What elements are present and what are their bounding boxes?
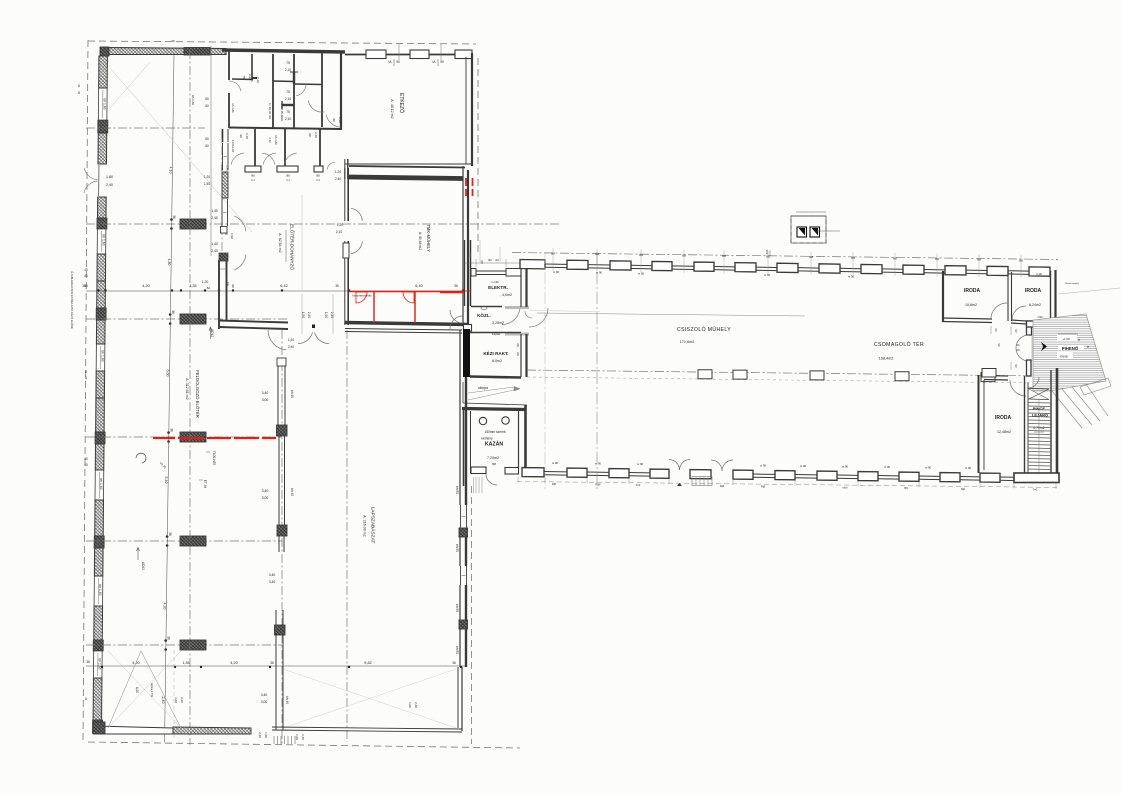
- svg-text:A: 312,81 m2: A: 312,81 m2: [185, 378, 189, 399]
- svg-text:ELEKTR.: ELEKTR.: [488, 285, 508, 290]
- svg-text:8: 8: [78, 91, 80, 95]
- svg-text:6,42: 6,42: [280, 284, 287, 288]
- svg-text:bh 40: bh 40: [290, 390, 294, 398]
- svg-text:KAZÁN: KAZÁN: [485, 441, 503, 448]
- svg-text:3,00: 3,00: [261, 700, 268, 704]
- svg-text:4,20: 4,20: [162, 603, 166, 610]
- svg-text:2,10: 2,10: [338, 117, 342, 123]
- svg-text:FELDOLGOZÓ ELŐTÉR: FELDOLGOZÓ ELŐTÉR: [195, 370, 200, 418]
- svg-text:bh 40: bh 40: [290, 488, 294, 496]
- svg-text:8: 8: [85, 697, 87, 701]
- svg-text:bh 1,80: bh 1,80: [231, 103, 235, 113]
- svg-text:2,40: 2,40: [301, 734, 305, 740]
- svg-text:4,20: 4,20: [135, 687, 139, 694]
- svg-text:nova: nova: [1060, 355, 1067, 359]
- svg-text:m 90: m 90: [595, 461, 602, 465]
- svg-text:75: 75: [286, 110, 290, 114]
- svg-text:90: 90: [332, 118, 336, 122]
- svg-text:8|8: 8|8: [766, 255, 770, 259]
- svg-text:40: 40: [84, 274, 88, 278]
- svg-text:1,20: 1,20: [337, 223, 344, 227]
- svg-text:A: 48,12 m2: A: 48,12 m2: [390, 99, 394, 118]
- svg-text:4,80: 4,80: [167, 259, 171, 266]
- svg-text:2,10: 2,10: [285, 97, 291, 101]
- svg-text:KÉZI RAKT.: KÉZI RAKT.: [483, 349, 508, 356]
- svg-text:8: 8: [85, 376, 87, 380]
- svg-text:150mm szerelt: 150mm szerelt: [485, 430, 506, 434]
- svg-text:1,40: 1,40: [211, 242, 218, 246]
- svg-text:D|R: D|R: [720, 484, 725, 488]
- svg-text:,62: ,62: [206, 286, 211, 290]
- svg-text:4,10: 4,10: [168, 167, 172, 174]
- svg-text:8|8: 8|8: [977, 258, 981, 262]
- svg-text:m 90: m 90: [638, 271, 645, 275]
- svg-text:bh 1,60: bh 1,60: [99, 478, 103, 489]
- svg-text:m 90: m 90: [965, 466, 972, 470]
- svg-text:1,00: 1,00: [408, 702, 412, 708]
- svg-text:12,48m2: 12,48m2: [997, 430, 1011, 434]
- svg-text:1,20: 1,20: [202, 280, 209, 284]
- svg-text:8|8: 8|8: [639, 253, 643, 257]
- svg-text:6,24m2: 6,24m2: [1029, 303, 1041, 307]
- svg-text:R|8: R|8: [761, 484, 766, 488]
- svg-text:8|9: 8|9: [904, 486, 908, 490]
- svg-text:3,00: 3,00: [174, 697, 178, 703]
- svg-text:2|2: 2|2: [495, 258, 499, 262]
- svg-text:m 90: m 90: [800, 464, 807, 468]
- svg-text:10,8m2: 10,8m2: [965, 303, 977, 307]
- svg-text:3,00: 3,00: [262, 398, 269, 402]
- svg-text:9|2: 9|2: [488, 258, 492, 262]
- svg-text:90: 90: [396, 60, 400, 64]
- svg-text:171,6m2: 171,6m2: [680, 340, 695, 344]
- svg-text:1,00: 1,00: [264, 732, 268, 738]
- svg-text:R|W: R|W: [596, 482, 602, 486]
- svg-text:4,20: 4,20: [230, 661, 237, 665]
- svg-text:75: 75: [286, 61, 290, 65]
- svg-text:75: 75: [286, 90, 290, 94]
- svg-text:60: 60: [205, 97, 209, 101]
- svg-text:, 3,25m2: , 3,25m2: [490, 321, 504, 325]
- svg-text:m 160: m 160: [491, 280, 499, 284]
- svg-text:2,10: 2,10: [285, 68, 291, 72]
- svg-text:36: 36: [166, 636, 170, 640]
- svg-text:A: 216,03 m2: A: 216,03 m2: [363, 515, 367, 536]
- svg-text:m90: m90: [1037, 315, 1043, 319]
- svg-text:, 4,0m2: , 4,0m2: [500, 293, 512, 297]
- svg-text:36: 36: [82, 284, 86, 288]
- svg-text:2|0: 2|0: [516, 343, 520, 347]
- svg-text:36: 36: [86, 660, 90, 664]
- svg-text:bh 1,60: bh 1,60: [98, 658, 102, 669]
- svg-text:8|8: 8|8: [893, 256, 897, 260]
- svg-text:2,10A 1,80: 2,10A 1,80: [231, 140, 235, 153]
- svg-text:IRODA: IRODA: [995, 415, 1012, 421]
- svg-text:40: 40: [84, 268, 88, 272]
- svg-text:1,50: 1,50: [324, 312, 328, 318]
- svg-text:1,40: 1,40: [211, 209, 218, 213]
- svg-text:AD42: AD42: [141, 562, 145, 570]
- svg-text:8|8: 8|8: [1019, 258, 1023, 262]
- svg-text:2,40: 2,40: [307, 312, 311, 318]
- svg-text:A: 40,64 m2: A: 40,64 m2: [418, 232, 422, 250]
- svg-text:ELŐTÉR-DOHÁNYZÓ: ELŐTÉR-DOHÁNYZÓ: [290, 224, 296, 270]
- svg-text:bh 1,60: bh 1,60: [100, 350, 104, 361]
- svg-text:PIHENŐ: PIHENŐ: [1062, 346, 1079, 351]
- svg-text:90: 90: [440, 60, 444, 64]
- svg-text:4,20: 4,20: [142, 284, 149, 288]
- svg-text:m 90: m 90: [764, 273, 771, 277]
- svg-text:2,10: 2,10: [285, 117, 291, 121]
- svg-text:2,40: 2,40: [258, 732, 262, 738]
- svg-text:36: 36: [454, 284, 458, 288]
- svg-text:8|8: 8|8: [492, 462, 496, 466]
- svg-text:102: 102: [765, 250, 769, 255]
- svg-text:Rövid szegély: Rövid szegély: [1065, 283, 1080, 285]
- svg-text:R|d: R|d: [961, 487, 966, 491]
- svg-text:2,10: 2,10: [314, 132, 318, 138]
- svg-text:90: 90: [239, 134, 243, 138]
- svg-text:2|0: 2|0: [480, 260, 484, 264]
- svg-text:40: 40: [84, 457, 88, 461]
- svg-text:2|6: 2|6: [516, 352, 520, 356]
- svg-text:2,40: 2,40: [106, 183, 113, 187]
- svg-text:2,40: 2,40: [161, 697, 165, 704]
- svg-text:36: 36: [452, 661, 456, 665]
- svg-text:kompresszorház: kompresszorház: [352, 294, 372, 298]
- svg-text:bh 90: bh 90: [455, 604, 459, 612]
- svg-text:ET-54: ET-54: [203, 480, 207, 489]
- svg-text:+1,00: +1,00: [1062, 337, 1070, 341]
- svg-text:3,40: 3,40: [269, 580, 276, 584]
- svg-text:m,90: m,90: [1036, 272, 1042, 276]
- svg-text:75: 75: [242, 75, 246, 79]
- svg-text:m 90: m 90: [884, 465, 891, 469]
- svg-text:bh 90: bh 90: [455, 544, 459, 552]
- svg-text:2,40: 2,40: [288, 345, 294, 349]
- svg-text:lejtés 17%: lejtés 17%: [150, 683, 154, 697]
- svg-text:1,20: 1,20: [335, 170, 341, 174]
- svg-text:8|8: 8|8: [551, 251, 555, 255]
- svg-text:bh 1,60: bh 1,60: [98, 584, 102, 595]
- svg-text:1,02: 1,02: [230, 233, 234, 239]
- svg-text:9|0: 9|0: [251, 174, 255, 178]
- svg-text:3,00: 3,00: [262, 496, 269, 500]
- svg-text:ÉTKEZŐ: ÉTKEZŐ: [398, 93, 405, 113]
- svg-text:36: 36: [171, 39, 175, 43]
- svg-text:60: 60: [205, 137, 209, 141]
- svg-text:1,50: 1,50: [301, 312, 305, 318]
- svg-text:bh 1,60: bh 1,60: [102, 98, 106, 109]
- svg-text:bh 90: bh 90: [455, 486, 459, 494]
- svg-text:60: 60: [205, 144, 209, 148]
- svg-text:LAPSZABÁSZAT: LAPSZABÁSZAT: [370, 507, 377, 544]
- svg-text:kémény: kémény: [481, 437, 493, 441]
- svg-text:7,20m2: 7,20m2: [487, 456, 499, 460]
- svg-text:6,40: 6,40: [415, 284, 422, 288]
- svg-text:m 90: m 90: [553, 270, 560, 274]
- svg-text:R|8: R|8: [552, 482, 557, 486]
- svg-text:felújítás: felújítás: [492, 333, 501, 336]
- svg-text:1,35: 1,35: [190, 284, 197, 288]
- svg-text:CSISZOLÓ MŰHELY: CSISZOLÓ MŰHELY: [677, 326, 731, 333]
- svg-text:m 90: m 90: [848, 274, 855, 278]
- svg-text:90: 90: [231, 284, 235, 288]
- svg-text:2,1: 2,1: [251, 178, 255, 182]
- svg-text:bh 1,80: bh 1,80: [274, 135, 278, 145]
- svg-text:1,90: 1,90: [226, 165, 230, 171]
- svg-text:8: 8: [78, 84, 80, 88]
- svg-text:2,40: 2,40: [335, 177, 341, 181]
- svg-text:8: 8: [85, 370, 87, 374]
- svg-text:1,50: 1,50: [204, 182, 210, 186]
- svg-text:9,82: 9,82: [364, 661, 371, 665]
- svg-text:6,00: 6,00: [166, 370, 170, 377]
- svg-text:bh 1,80: bh 1,80: [191, 95, 195, 105]
- svg-text:36: 36: [172, 215, 176, 219]
- svg-text:168,4m2: 168,4m2: [879, 357, 894, 361]
- svg-text:m 90: m 90: [637, 462, 644, 466]
- svg-text:36: 36: [169, 428, 173, 432]
- svg-text:rámpa: rámpa: [478, 386, 488, 390]
- svg-text:2,1: 2,1: [316, 178, 320, 182]
- svg-text:CSOMAGOLÓ TÉR: CSOMAGOLÓ TÉR: [874, 341, 924, 348]
- svg-text:3,40: 3,40: [269, 573, 276, 577]
- svg-text:2,10: 2,10: [245, 133, 249, 139]
- svg-text:VÍZ,SZ.BLOKK: VÍZ,SZ.BLOKK: [280, 101, 284, 121]
- svg-text:8|8: 8|8: [722, 254, 726, 258]
- svg-text:0=0: 0=0: [636, 483, 641, 487]
- svg-text:36: 36: [168, 532, 172, 536]
- svg-text:2,10: 2,10: [180, 697, 184, 703]
- svg-text:3,40: 3,40: [262, 489, 269, 493]
- svg-text:bh 90: bh 90: [455, 646, 459, 654]
- svg-text:2,40: 2,40: [211, 249, 218, 253]
- svg-text:8|8: 8|8: [809, 255, 813, 259]
- svg-text:75: 75: [250, 78, 254, 82]
- svg-text:m 90: m 90: [760, 463, 767, 467]
- svg-text:2,10: 2,10: [268, 137, 272, 143]
- svg-text:2,10: 2,10: [256, 77, 260, 83]
- svg-text:TMK-MŰHELY: TMK-MŰHELY: [426, 224, 431, 252]
- svg-text:A: 62,64 m2: A: 62,64 m2: [278, 233, 282, 252]
- svg-text:8|8: 8|8: [682, 253, 686, 257]
- svg-text:1,40: 1,40: [288, 338, 294, 342]
- svg-text:2,05: 2,05: [220, 165, 224, 171]
- svg-text:IRODA: IRODA: [1025, 288, 1042, 294]
- svg-text:2,40: 2,40: [330, 312, 334, 318]
- svg-text:7=0: 7=0: [1033, 488, 1038, 492]
- svg-text:36: 36: [270, 661, 274, 665]
- svg-text:bh 1,60: bh 1,60: [101, 234, 105, 245]
- svg-text:✕: ✕: [1087, 345, 1090, 349]
- svg-text:60: 60: [205, 104, 209, 108]
- svg-text:5,40: 5,40: [164, 477, 168, 484]
- svg-text:IRODA: IRODA: [964, 288, 981, 294]
- svg-text:1,35: 1,35: [183, 661, 190, 665]
- svg-text:2,40: 2,40: [414, 702, 418, 708]
- svg-text:2,10: 2,10: [336, 230, 343, 234]
- svg-text:8|8: 8|8: [935, 257, 939, 261]
- svg-text:KÖZL.: KÖZL.: [477, 312, 491, 318]
- svg-text:1,20: 1,20: [204, 175, 210, 179]
- svg-text:T100-H25: T100-H25: [212, 451, 216, 465]
- svg-text:9|0: 9|0: [286, 174, 290, 178]
- svg-text:36: 36: [335, 284, 339, 288]
- svg-text:m|m: m|m: [843, 485, 848, 489]
- svg-text:2,40: 2,40: [211, 216, 218, 220]
- svg-text:1,00: 1,00: [295, 734, 299, 740]
- svg-text:36: 36: [171, 310, 175, 314]
- svg-text:A: 30,36 m2: A: 30,36 m2: [268, 103, 272, 120]
- svg-text:90: 90: [308, 133, 312, 137]
- svg-text:bh 40: bh 40: [285, 696, 289, 704]
- svg-text:9|0: 9|0: [316, 174, 320, 178]
- svg-text:m 90: m 90: [842, 464, 849, 468]
- svg-text:m 90: m 90: [925, 465, 932, 469]
- svg-text:1,80: 1,80: [106, 175, 113, 179]
- svg-text:m 90: m 90: [552, 461, 559, 465]
- svg-text:6,0m2: 6,0m2: [492, 359, 502, 363]
- svg-text:3,40: 3,40: [262, 391, 269, 395]
- svg-text:2,1: 2,1: [286, 178, 290, 182]
- svg-text:8|8: 8|8: [851, 256, 855, 260]
- svg-text:3,40: 3,40: [261, 693, 268, 697]
- svg-text:40: 40: [84, 463, 88, 467]
- svg-text:✕: ✕: [1078, 338, 1081, 342]
